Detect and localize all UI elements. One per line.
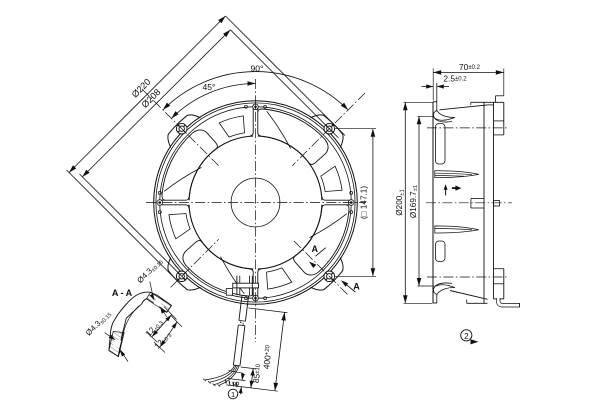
svg-text:45°: 45°	[203, 82, 216, 92]
svg-text:(□ 147.1): (□ 147.1)	[360, 186, 369, 219]
svg-text:A: A	[311, 244, 318, 254]
svg-text:A - A: A - A	[112, 288, 133, 298]
svg-text:1: 1	[231, 390, 235, 399]
svg-text:A: A	[353, 282, 360, 292]
svg-text:2: 2	[464, 332, 469, 341]
svg-text:90°: 90°	[251, 64, 264, 74]
